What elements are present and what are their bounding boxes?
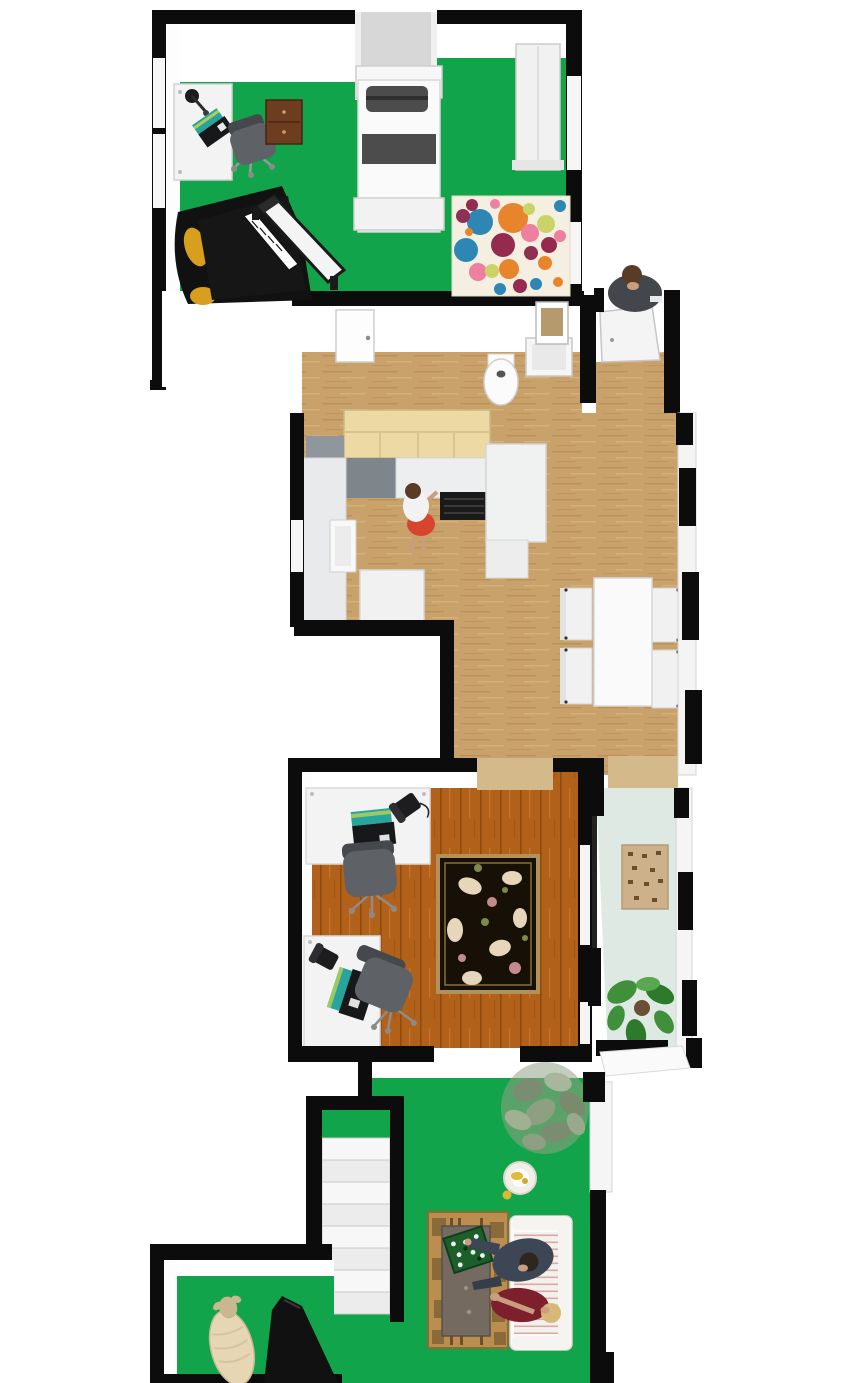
person-entry-man[interactable] bbox=[608, 265, 662, 312]
sunroom-window-wall bbox=[674, 788, 702, 1068]
floorplan-canvas bbox=[0, 0, 864, 1383]
bidet[interactable] bbox=[484, 354, 518, 405]
dining-chair[interactable] bbox=[560, 588, 592, 640]
polka-dot-rug[interactable] bbox=[452, 196, 570, 296]
sunroom-rug[interactable] bbox=[622, 845, 668, 909]
room-living bbox=[294, 1048, 614, 1383]
bedroom-dresser[interactable] bbox=[266, 100, 302, 144]
kitchen-window bbox=[291, 520, 303, 572]
office-right-glass-2 bbox=[580, 1002, 590, 1044]
hall-right-wall bbox=[664, 290, 680, 418]
bedroom-wall-face-top bbox=[166, 24, 356, 82]
room-sunroom bbox=[588, 758, 702, 1076]
room-office bbox=[288, 758, 593, 1062]
office-right-glass bbox=[580, 845, 590, 945]
music-room-wall-face bbox=[164, 1260, 334, 1276]
backsplash bbox=[344, 458, 396, 498]
upper-cabinets[interactable] bbox=[344, 410, 490, 458]
office-wall-face-top bbox=[302, 772, 478, 788]
entry-door[interactable] bbox=[600, 306, 660, 362]
wardrobe[interactable] bbox=[512, 44, 564, 170]
room-music bbox=[150, 1244, 342, 1383]
sunroom-threshold bbox=[608, 756, 678, 792]
dining-window-wall bbox=[676, 413, 702, 775]
striped-sofa[interactable] bbox=[510, 1216, 572, 1350]
room-kitchen-dining bbox=[290, 410, 702, 792]
bathroom-mirror bbox=[536, 302, 568, 344]
music-room-wall-face-left bbox=[164, 1260, 177, 1383]
single-bed[interactable] bbox=[354, 66, 444, 232]
stove[interactable] bbox=[440, 492, 488, 520]
office-door-threshold[interactable] bbox=[477, 758, 553, 790]
office-floral-rug[interactable] bbox=[438, 856, 538, 992]
bedroom-exterior-wall-face bbox=[162, 291, 292, 387]
dining-chair[interactable] bbox=[560, 648, 592, 704]
entry-hall bbox=[594, 265, 680, 420]
hall-door-post bbox=[594, 288, 604, 312]
room-bathroom bbox=[302, 295, 596, 414]
bathroom-door[interactable] bbox=[336, 310, 374, 362]
bathroom-right-wall bbox=[580, 295, 596, 403]
dining-table[interactable] bbox=[594, 578, 652, 706]
